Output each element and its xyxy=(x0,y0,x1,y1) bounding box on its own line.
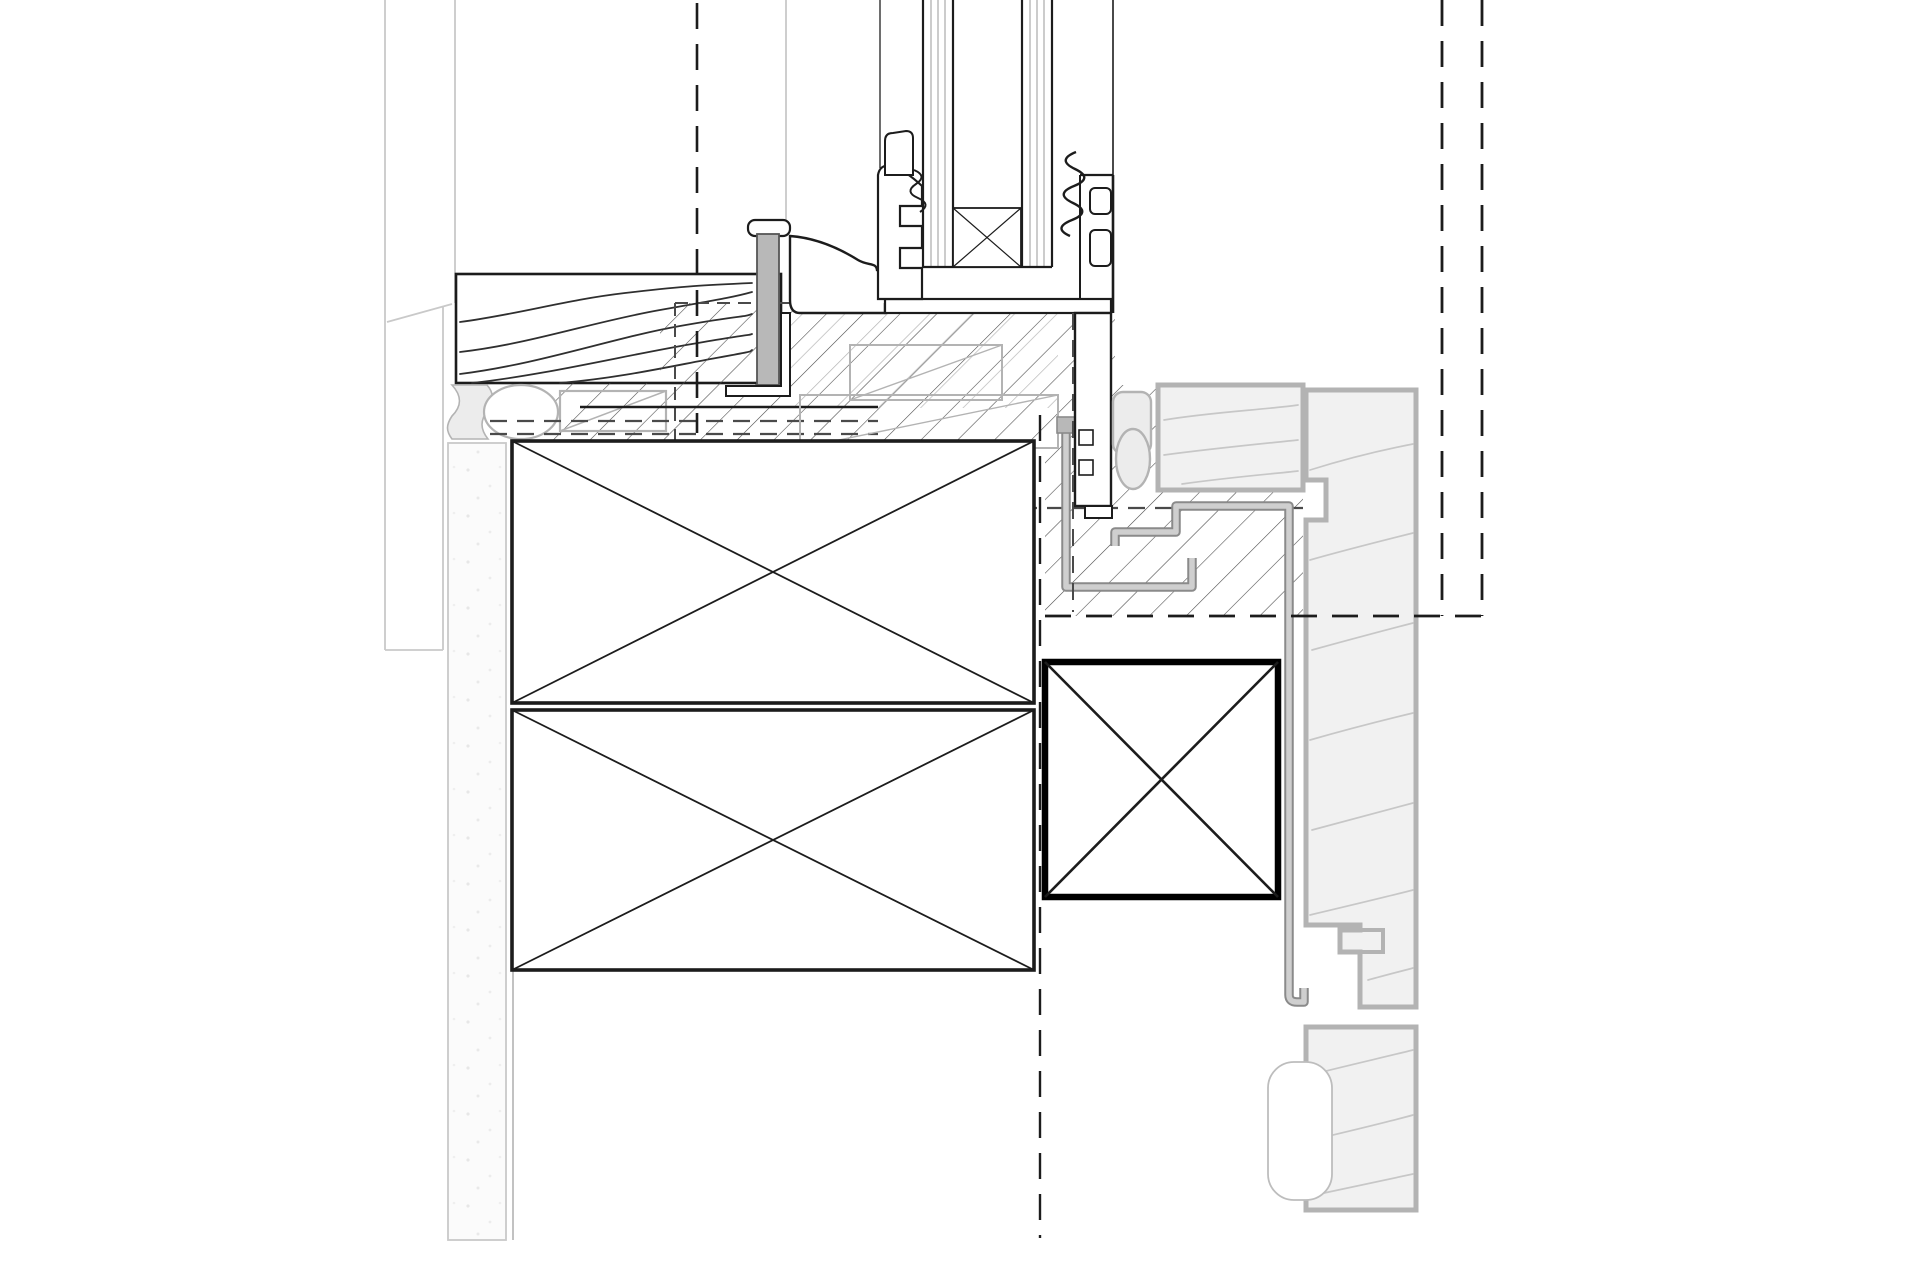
thermal-pad xyxy=(757,234,779,385)
timber-blocking-lower xyxy=(512,710,1034,970)
cap-groove-2 xyxy=(1090,230,1111,266)
section-detail-drawing xyxy=(0,0,1920,1280)
frame-leg-foot xyxy=(1085,506,1112,518)
glazing-spacer xyxy=(953,208,1021,267)
trim-cover xyxy=(1268,1062,1332,1200)
cap-groove-1 xyxy=(1090,188,1111,214)
structural-blocking xyxy=(1045,662,1278,897)
detail-drawing-canvas xyxy=(0,0,1920,1280)
glazing-bead xyxy=(878,166,922,299)
plaster-strip xyxy=(448,443,513,1240)
horizontal-batten xyxy=(1158,385,1303,490)
backer-rod xyxy=(484,385,558,439)
timber-blocking-upper xyxy=(512,441,1034,703)
foam-gasket xyxy=(1113,392,1151,489)
bead-top-flange xyxy=(885,131,913,175)
gasket-bulb xyxy=(1116,429,1150,489)
frame-leg xyxy=(1075,313,1111,506)
hatch-light-overlay xyxy=(781,313,1058,408)
frame-bottom-plate xyxy=(885,299,1111,313)
